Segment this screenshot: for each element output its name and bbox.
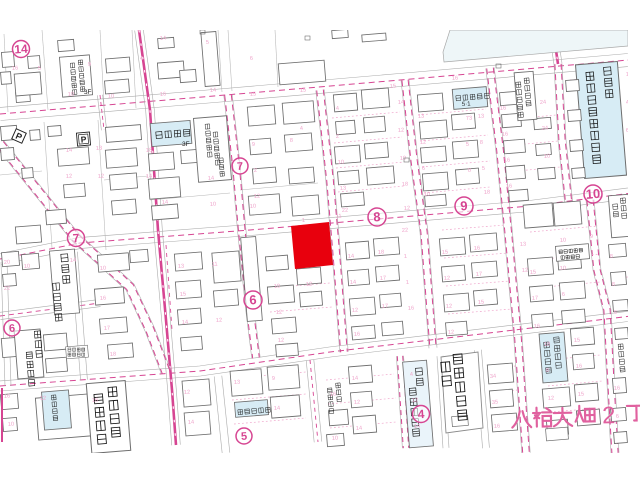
svg-text:16: 16 <box>494 424 501 430</box>
svg-text:35: 35 <box>492 400 499 406</box>
svg-text:6: 6 <box>616 414 620 420</box>
svg-text:15: 15 <box>578 392 585 398</box>
svg-text:10: 10 <box>108 94 115 100</box>
svg-text:6: 6 <box>9 323 16 335</box>
svg-text:22: 22 <box>342 208 349 214</box>
svg-text:12: 12 <box>66 174 73 180</box>
svg-text:16: 16 <box>330 392 337 398</box>
svg-text:10: 10 <box>332 436 339 442</box>
svg-text:14: 14 <box>352 376 359 382</box>
svg-text:9: 9 <box>252 142 256 148</box>
svg-text:18: 18 <box>378 250 385 256</box>
svg-text:7: 7 <box>237 161 244 173</box>
svg-text:12: 12 <box>254 194 261 200</box>
svg-text:24: 24 <box>540 100 547 106</box>
svg-text:8: 8 <box>480 140 484 146</box>
svg-text:2: 2 <box>602 402 616 429</box>
svg-text:22: 22 <box>4 286 11 292</box>
svg-text:10: 10 <box>250 204 257 210</box>
svg-text:1: 1 <box>302 218 306 224</box>
svg-text:10: 10 <box>24 264 31 270</box>
svg-text:12: 12 <box>420 140 427 146</box>
svg-text:14: 14 <box>398 100 405 106</box>
svg-text:5: 5 <box>206 40 210 46</box>
svg-text:6: 6 <box>614 310 618 316</box>
svg-text:10: 10 <box>560 238 567 244</box>
svg-text:7: 7 <box>72 231 80 245</box>
svg-text:14: 14 <box>274 406 281 412</box>
svg-text:12: 12 <box>184 390 191 396</box>
svg-text:16: 16 <box>576 364 583 370</box>
svg-text:6: 6 <box>562 292 566 298</box>
svg-text:16: 16 <box>354 332 361 338</box>
svg-text:15: 15 <box>442 250 449 256</box>
svg-text:12: 12 <box>404 206 411 212</box>
svg-text:16: 16 <box>504 158 511 164</box>
svg-text:10: 10 <box>424 192 431 198</box>
svg-text:14: 14 <box>348 254 355 260</box>
svg-text:22: 22 <box>402 228 409 234</box>
svg-text:14: 14 <box>66 148 73 154</box>
svg-text:17: 17 <box>382 304 389 310</box>
svg-text:10: 10 <box>544 154 551 160</box>
svg-text:8: 8 <box>610 254 614 260</box>
svg-text:18: 18 <box>110 352 117 358</box>
svg-text:9: 9 <box>88 62 92 68</box>
svg-text:10: 10 <box>8 422 15 428</box>
svg-text:10: 10 <box>68 92 75 98</box>
svg-text:10: 10 <box>338 160 345 166</box>
svg-text:16: 16 <box>502 132 509 138</box>
svg-text:6: 6 <box>250 56 254 62</box>
svg-text:12: 12 <box>276 310 283 316</box>
svg-text:14: 14 <box>414 424 421 430</box>
svg-text:16: 16 <box>12 66 19 72</box>
svg-text:12: 12 <box>398 128 405 134</box>
svg-text:16: 16 <box>500 106 507 112</box>
svg-text:13: 13 <box>340 186 347 192</box>
svg-text:17: 17 <box>532 296 539 302</box>
svg-text:1: 1 <box>406 280 410 286</box>
svg-text:15: 15 <box>390 84 397 90</box>
svg-text:15: 15 <box>478 300 485 306</box>
svg-text:12: 12 <box>354 400 361 406</box>
svg-text:15: 15 <box>300 88 307 94</box>
svg-text:16: 16 <box>452 76 459 82</box>
svg-text:5: 5 <box>466 142 470 148</box>
svg-text:73: 73 <box>466 116 473 122</box>
svg-text:12: 12 <box>446 304 453 310</box>
svg-text:14: 14 <box>356 426 363 432</box>
svg-text:15: 15 <box>180 292 187 298</box>
svg-text:14: 14 <box>70 258 77 264</box>
svg-text:15: 15 <box>530 270 537 276</box>
svg-text:13: 13 <box>478 114 485 120</box>
svg-text:16: 16 <box>92 398 99 404</box>
svg-text:5·1: 5·1 <box>462 101 472 108</box>
svg-text:24: 24 <box>542 126 549 132</box>
svg-text:10: 10 <box>100 266 107 272</box>
svg-text:14: 14 <box>160 36 167 42</box>
svg-text:16: 16 <box>160 92 167 98</box>
svg-text:10: 10 <box>210 202 217 208</box>
svg-text:14: 14 <box>210 88 217 94</box>
svg-text:17: 17 <box>104 326 111 332</box>
svg-text:0: 0 <box>468 168 472 174</box>
svg-text:9: 9 <box>460 198 468 213</box>
svg-text:10: 10 <box>560 266 567 272</box>
svg-text:10: 10 <box>400 156 407 162</box>
svg-text:13: 13 <box>234 380 241 386</box>
svg-text:15: 15 <box>250 92 257 98</box>
svg-text:4: 4 <box>410 372 414 378</box>
svg-text:12: 12 <box>412 398 419 404</box>
svg-text:12: 12 <box>40 396 47 402</box>
svg-text:12: 12 <box>548 396 555 402</box>
svg-text:4: 4 <box>417 407 425 421</box>
svg-text:1: 1 <box>404 254 408 260</box>
svg-text:12: 12 <box>278 338 285 344</box>
svg-text:16: 16 <box>614 386 621 392</box>
svg-text:13: 13 <box>96 146 103 152</box>
svg-text:18: 18 <box>402 182 409 188</box>
svg-text:11: 11 <box>212 262 218 268</box>
svg-text:8: 8 <box>546 368 550 374</box>
svg-text:17: 17 <box>476 272 483 278</box>
svg-text:5: 5 <box>482 166 486 172</box>
svg-text:8: 8 <box>373 209 381 224</box>
svg-text:11: 11 <box>336 214 342 220</box>
svg-text:14: 14 <box>350 280 357 286</box>
svg-text:14: 14 <box>182 320 189 326</box>
svg-text:12: 12 <box>444 276 451 282</box>
svg-text:16: 16 <box>506 184 513 190</box>
svg-text:18: 18 <box>484 190 491 196</box>
svg-text:12: 12 <box>352 308 359 314</box>
svg-text:3F: 3F <box>182 141 190 148</box>
svg-text:2: 2 <box>254 168 258 174</box>
svg-text:8: 8 <box>290 138 294 144</box>
svg-text:20: 20 <box>4 260 11 266</box>
svg-text:16: 16 <box>474 246 481 252</box>
svg-text:12: 12 <box>306 282 313 288</box>
svg-text:14: 14 <box>162 200 169 206</box>
svg-text:8: 8 <box>612 282 616 288</box>
svg-text:13: 13 <box>178 264 185 270</box>
svg-text:14: 14 <box>146 174 153 180</box>
svg-text:9: 9 <box>590 234 594 240</box>
svg-text:16: 16 <box>534 324 541 330</box>
svg-text:4: 4 <box>336 106 340 112</box>
svg-text:15: 15 <box>574 338 581 344</box>
svg-text:4: 4 <box>300 126 304 132</box>
svg-text:6: 6 <box>249 292 257 307</box>
svg-text:9: 9 <box>272 376 276 382</box>
svg-text:16: 16 <box>408 306 415 312</box>
svg-text:14: 14 <box>14 42 29 57</box>
svg-text:10: 10 <box>585 186 600 202</box>
svg-text:10: 10 <box>274 284 281 290</box>
svg-text:16: 16 <box>4 394 11 400</box>
svg-text:12: 12 <box>98 174 105 180</box>
svg-text:3F: 3F <box>84 89 92 97</box>
svg-text:17: 17 <box>380 276 387 282</box>
svg-text:12: 12 <box>448 330 455 336</box>
svg-text:6: 6 <box>422 166 426 172</box>
svg-text:34: 34 <box>490 374 497 380</box>
svg-text:2: 2 <box>336 134 340 140</box>
svg-text:12: 12 <box>216 318 223 324</box>
svg-text:4: 4 <box>140 56 144 62</box>
svg-text:5: 5 <box>241 431 248 443</box>
svg-text:12: 12 <box>522 268 529 274</box>
svg-text:13: 13 <box>418 114 425 120</box>
svg-text:14: 14 <box>188 420 195 426</box>
svg-text:18: 18 <box>146 148 153 154</box>
svg-text:18: 18 <box>544 342 551 348</box>
svg-text:16: 16 <box>100 296 107 302</box>
svg-text:13: 13 <box>520 242 527 248</box>
svg-text:14: 14 <box>208 176 215 182</box>
svg-text:5: 5 <box>38 66 42 72</box>
